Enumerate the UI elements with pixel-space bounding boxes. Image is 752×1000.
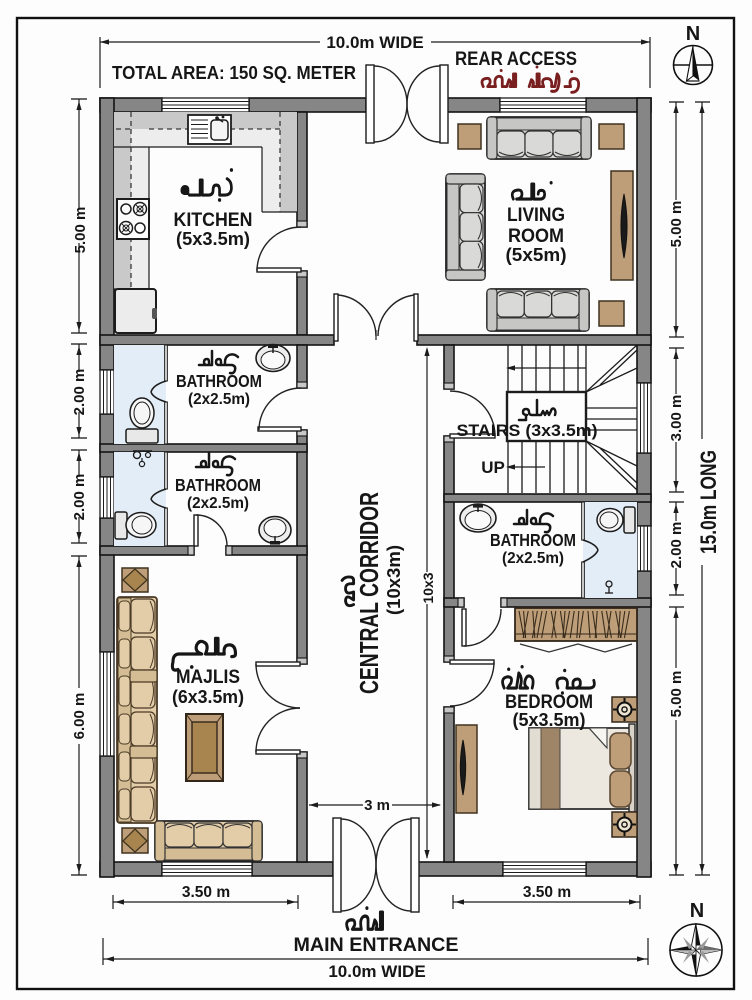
svg-text:2.00 m: 2.00 m xyxy=(668,522,685,569)
svg-text:6.00 m: 6.00 m xyxy=(71,693,88,740)
svg-text:UP: UP xyxy=(481,458,505,477)
svg-text:5.00 m: 5.00 m xyxy=(668,671,685,718)
svg-text:2.00 m: 2.00 m xyxy=(71,474,88,521)
svg-text:BATHROOM: BATHROOM xyxy=(175,475,261,495)
svg-text:REAR ACCESS: REAR ACCESS xyxy=(455,49,577,70)
svg-text:N: N xyxy=(686,23,700,45)
svg-text:MAIN ENTRANCE: MAIN ENTRANCE xyxy=(294,935,459,956)
svg-text:10.0m WIDE: 10.0m WIDE xyxy=(328,962,425,981)
svg-text:(2x2.5m): (2x2.5m) xyxy=(502,550,564,567)
svg-text:TOTAL AREA: 150 SQ. METER: TOTAL AREA: 150 SQ. METER xyxy=(112,62,356,83)
svg-text:5.00 m: 5.00 m xyxy=(668,201,685,248)
svg-text:BATHROOM: BATHROOM xyxy=(176,371,262,391)
svg-text:10x3: 10x3 xyxy=(420,572,436,603)
svg-text:MAJLIS: MAJLIS xyxy=(176,666,240,688)
svg-text:(5x5m): (5x5m) xyxy=(506,245,567,265)
svg-text:5.00 m: 5.00 m xyxy=(72,207,89,254)
svg-text:BATHROOM: BATHROOM xyxy=(490,530,576,550)
svg-text:CENTRAL CORRIDOR: CENTRAL CORRIDOR xyxy=(354,492,384,694)
svg-text:10.0m WIDE: 10.0m WIDE xyxy=(326,33,423,52)
svg-text:(10x3m): (10x3m) xyxy=(384,545,404,615)
svg-text:(2x2.5m): (2x2.5m) xyxy=(188,391,250,408)
svg-text:3.50 m: 3.50 m xyxy=(182,884,230,901)
svg-text:(5x3.5m): (5x3.5m) xyxy=(513,710,586,730)
svg-text:N: N xyxy=(690,900,704,922)
svg-text:(5x3.5m): (5x3.5m) xyxy=(176,229,250,249)
svg-text:LIVING: LIVING xyxy=(507,204,565,226)
svg-text:STAIRS (3x3.5m): STAIRS (3x3.5m) xyxy=(457,421,598,440)
svg-text:2.00 m: 2.00 m xyxy=(71,369,88,416)
svg-text:KITCHEN: KITCHEN xyxy=(174,209,253,231)
svg-text:3 m: 3 m xyxy=(364,797,390,814)
svg-text:15.0m LONG: 15.0m LONG xyxy=(696,450,721,554)
svg-text:(6x3.5m): (6x3.5m) xyxy=(172,687,244,707)
svg-text:3.00 m: 3.00 m xyxy=(668,395,685,442)
svg-text:(2x2.5m): (2x2.5m) xyxy=(187,495,249,512)
svg-text:3.50 m: 3.50 m xyxy=(523,884,571,901)
svg-text:ROOM: ROOM xyxy=(508,225,564,247)
